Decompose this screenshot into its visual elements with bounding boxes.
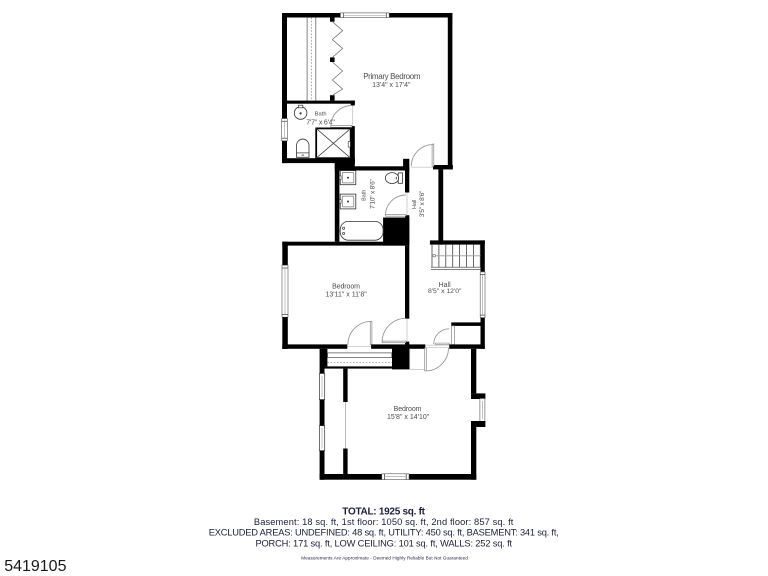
svg-text:Bedroom: Bedroom: [332, 284, 360, 291]
svg-text:13'11" x 11'8": 13'11" x 11'8": [325, 291, 367, 298]
svg-text:Bath: Bath: [361, 190, 367, 201]
svg-text:15'8" x 14'10": 15'8" x 14'10": [387, 414, 430, 421]
svg-text:8'5" x 12'0": 8'5" x 12'0": [428, 288, 462, 295]
svg-text:Hall: Hall: [412, 200, 418, 209]
svg-text:7'10" x 8'6": 7'10" x 8'6": [370, 178, 377, 209]
svg-text:Measurements Are Approximate -: Measurements Are Approximate - Deemed Hi…: [301, 556, 468, 561]
svg-text:PORCH: 171 sq. ft, LOW CEILING: PORCH: 171 sq. ft, LOW CEILING: 101 sq. …: [255, 539, 512, 549]
svg-text:13'4" x 17'4": 13'4" x 17'4": [372, 82, 411, 89]
svg-text:Basement: 18 sq. ft, 1st floor: Basement: 18 sq. ft, 1st floor: 1050 sq.…: [254, 517, 514, 527]
svg-text:5419105: 5419105: [4, 558, 66, 575]
svg-text:Primary Bedroom: Primary Bedroom: [363, 72, 421, 81]
svg-text:Bedroom: Bedroom: [394, 406, 422, 413]
svg-text:Bath: Bath: [315, 112, 327, 118]
svg-text:EXCLUDED AREAS: UNDEFINED: 48: EXCLUDED AREAS: UNDEFINED: 48 sq. ft, UT…: [209, 527, 559, 537]
svg-text:3'5" x 8'6": 3'5" x 8'6": [419, 190, 426, 217]
